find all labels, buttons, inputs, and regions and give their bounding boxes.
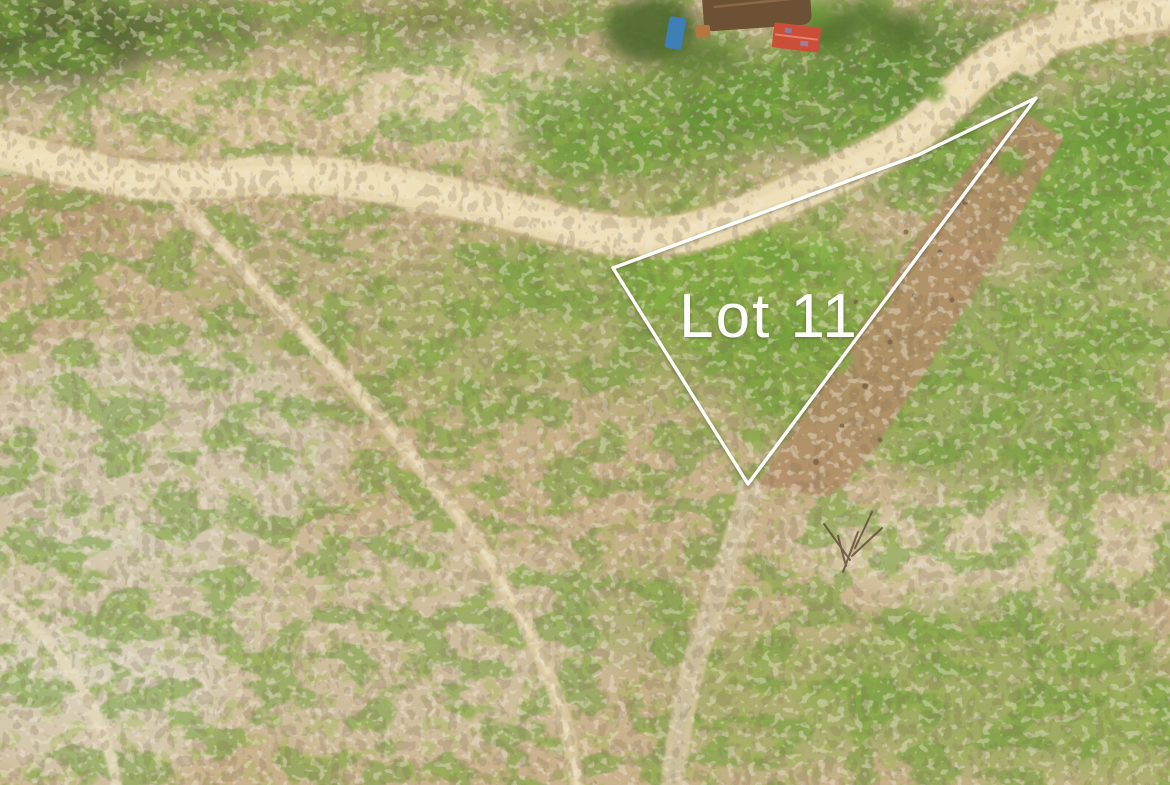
small-hut xyxy=(696,25,710,38)
aerial-photo-canvas: Lot 11 xyxy=(0,0,1170,785)
lot-label: Lot 11 xyxy=(679,282,859,351)
aerial-photo: Lot 11 xyxy=(0,0,1170,785)
